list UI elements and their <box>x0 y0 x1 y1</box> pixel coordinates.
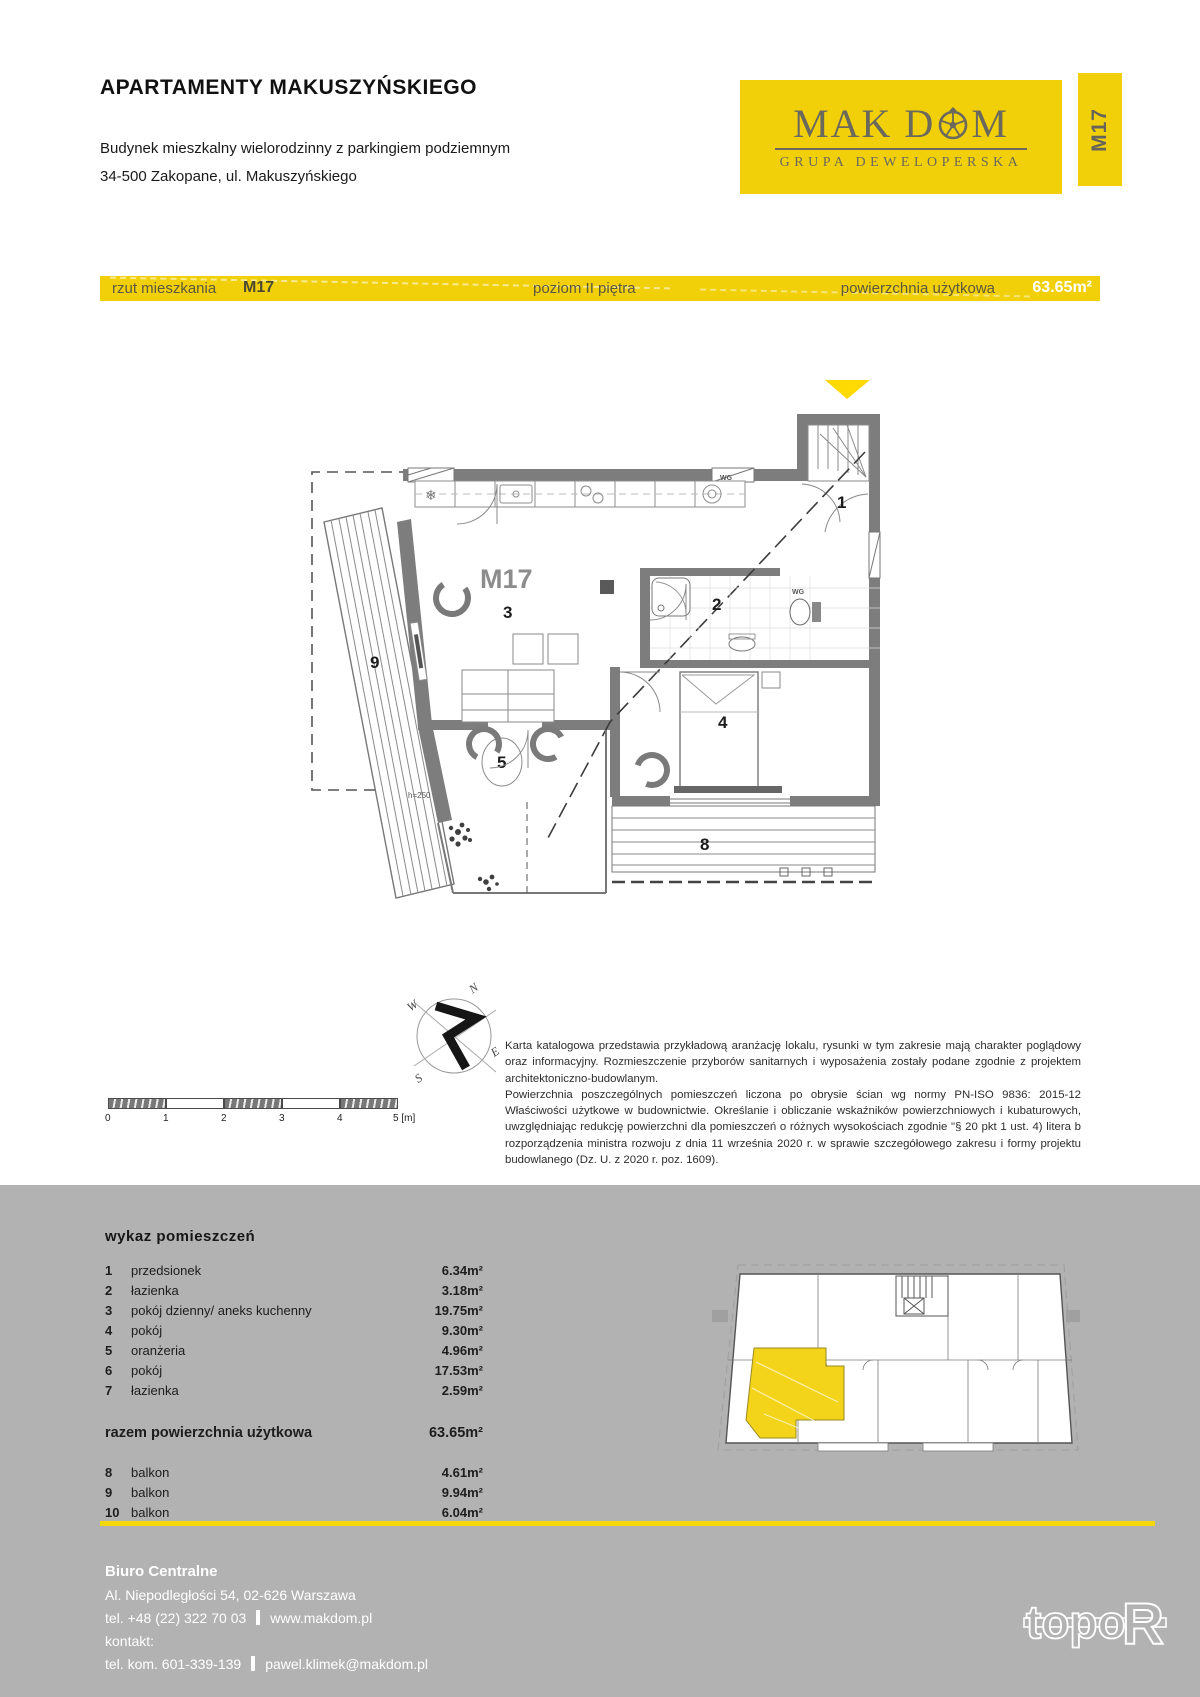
compass-n: N <box>465 980 481 997</box>
room-label-3: 3 <box>503 603 512 622</box>
page-title: APARTAMENTY MAKUSZYŃSKIEGO <box>100 76 477 100</box>
studio-logo-text: topo <box>1026 1596 1126 1648</box>
table-row-balcony: 9 balkon 9.94m² <box>105 1485 483 1500</box>
disclaimer-paragraph-2: Powierzchnia poszczególnych pomieszczeń … <box>505 1087 1081 1168</box>
room-label-4: 4 <box>718 713 728 732</box>
table-row: 7 łazienka 2.59m² <box>105 1383 483 1398</box>
office-title: Biuro Centralne <box>105 1560 428 1583</box>
room-label-5: 5 <box>497 753 506 772</box>
room-list-title: wykaz pomieszczeń <box>105 1228 255 1245</box>
table-row-balcony: 8 balkon 4.61m² <box>105 1465 483 1480</box>
room-label-2: 2 <box>712 595 721 614</box>
table-row: 1 przedsionek 6.34m² <box>105 1263 483 1278</box>
developer-logo-name: MAK D M <box>793 104 1009 144</box>
logo-divider <box>775 148 1027 150</box>
logo-text-right: M <box>971 104 1009 144</box>
plan-label: rzut mieszkania <box>112 280 216 297</box>
wheel-icon <box>936 107 970 141</box>
scale-tick: 0 <box>105 1113 111 1124</box>
plant <box>449 823 499 892</box>
table-row: 5 oranżeria 4.96m² <box>105 1343 483 1358</box>
scale-tick: 1 <box>163 1113 169 1124</box>
compass-rose: N W S E <box>406 980 502 1088</box>
room-label-9: 9 <box>370 653 379 672</box>
email-link[interactable]: pawel.klimek@makdom.pl <box>265 1656 428 1672</box>
table-row: 4 pokój 9.30m² <box>105 1323 483 1338</box>
table-row: 6 pokój 17.53m² <box>105 1363 483 1378</box>
stairs <box>808 425 869 481</box>
compass-e: E <box>487 1044 502 1061</box>
sofa <box>462 670 554 722</box>
living-room: M17 3 <box>410 484 614 722</box>
legal-disclaimer: Karta katalogowa przedstawia przykładową… <box>505 1038 1081 1168</box>
studio-logo-letter: R <box>1122 1592 1164 1657</box>
disclaimer-paragraph-1: Karta katalogowa przedstawia przykładową… <box>505 1038 1081 1087</box>
bathroom: 2 WG <box>650 576 880 660</box>
studio-logo: topo R <box>1020 1580 1170 1665</box>
unit-side-tab-label: M17 <box>1088 108 1112 152</box>
entrance-marker-triangle <box>825 380 870 399</box>
stair-core <box>896 1276 948 1316</box>
table-row: 2 łazienka 3.18m² <box>105 1283 483 1298</box>
building-description: Budynek mieszkalny wielorodzinny z parki… <box>100 140 510 157</box>
unit-info-bar: rzut mieszkania M17 poziom II piętra pow… <box>100 276 1100 301</box>
building-address: 34-500 Zakopane, ul. Makuszyńskiego <box>100 168 357 185</box>
contact-mobile: tel. kom. 601-339-139 <box>105 1656 241 1672</box>
footer-contact-block: Biuro Centralne Al. Niepodległości 54, 0… <box>105 1560 428 1675</box>
compass-w: W <box>406 996 421 1014</box>
balcony-9: 9 <box>324 508 454 898</box>
table-total-row: razem powierzchnia użytkowa 63.65m² <box>105 1425 483 1441</box>
scale-tick: 4 <box>337 1113 343 1124</box>
unit-side-tab: M17 <box>1078 73 1122 186</box>
website-link[interactable]: www.makdom.pl <box>270 1610 372 1626</box>
height-note: h=250 <box>408 791 431 800</box>
scale-bar: 0 1 2 3 4 5 [m] <box>108 1098 418 1130</box>
office-phone: tel. +48 (22) 322 70 03 <box>105 1610 246 1626</box>
kitchen-counter <box>415 481 745 507</box>
room-label-8: 8 <box>700 835 709 854</box>
scale-tick: 2 <box>221 1113 227 1124</box>
contact-label: kontakt: <box>105 1629 428 1652</box>
developer-logo: MAK D M GRUPA DEWELOPERSKA <box>740 80 1062 194</box>
building-key-plan <box>668 1262 1080 1454</box>
separator-bar <box>251 1656 255 1671</box>
usable-area-value: 63.65m² <box>1032 279 1092 297</box>
plan-unit-label: M17 <box>480 564 533 594</box>
logo-text-left: MAK D <box>793 104 935 144</box>
table-row: 3 pokój dzienny/ aneks kuchenny 19.75m² <box>105 1303 483 1318</box>
shaft <box>600 580 614 594</box>
usable-area-label: powierzchnia użytkowa <box>841 280 995 297</box>
room-label-1: 1 <box>837 493 846 512</box>
office-address: Al. Niepodległości 54, 02-626 Warszawa <box>105 1583 428 1606</box>
scale-tick: 5 [m] <box>393 1113 415 1124</box>
compass-s: S <box>412 1071 425 1086</box>
wg-label-kitchen: WG <box>720 475 733 482</box>
scale-tick: 3 <box>279 1113 285 1124</box>
floor-plan-drawing: 9 <box>280 372 890 904</box>
table-row-balcony: 10 balkon 6.04m² <box>105 1505 483 1520</box>
floor-level-label: poziom II piętra <box>533 280 636 297</box>
catalog-card-page: APARTAMENTY MAKUSZYŃSKIEGO Budynek miesz… <box>0 0 1200 1697</box>
bedroom: 4 <box>620 672 790 806</box>
bottom-section: wykaz pomieszczeń 1 przedsionek 6.34m² 2… <box>0 1185 1200 1697</box>
section-divider-line <box>100 1521 1155 1526</box>
separator-bar <box>256 1610 260 1625</box>
fridge-icon: ❄ <box>425 487 437 503</box>
balcony-8: 8 <box>612 806 878 882</box>
plan-unit-number: M17 <box>243 279 274 297</box>
wg-label-bath: WG <box>792 589 805 596</box>
developer-logo-tagline: GRUPA DEWELOPERSKA <box>780 155 1023 171</box>
